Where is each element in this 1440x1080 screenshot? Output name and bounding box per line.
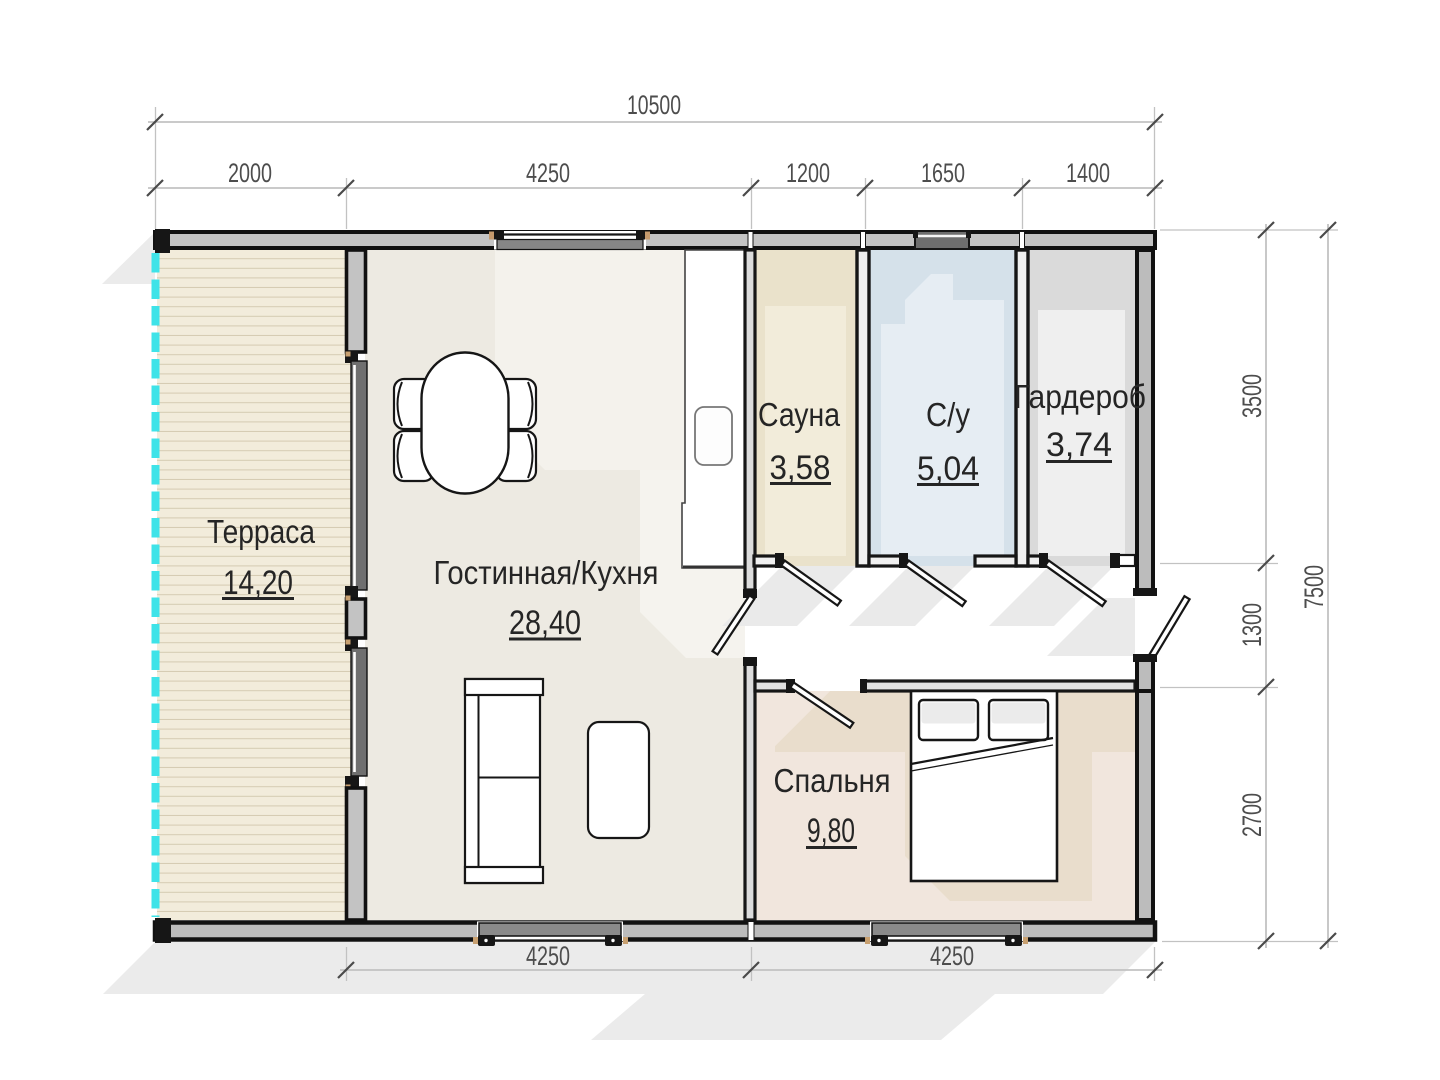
svg-text:4250: 4250 bbox=[526, 158, 570, 188]
svg-text:7500: 7500 bbox=[1299, 565, 1329, 609]
svg-text:1400: 1400 bbox=[1066, 158, 1110, 188]
svg-text:Сауна: Сауна bbox=[758, 396, 841, 433]
svg-text:3500: 3500 bbox=[1237, 374, 1267, 418]
svg-text:10500: 10500 bbox=[627, 90, 681, 120]
svg-text:1650: 1650 bbox=[921, 158, 965, 188]
svg-text:4250: 4250 bbox=[526, 941, 570, 971]
svg-text:28,40: 28,40 bbox=[509, 604, 581, 642]
svg-text:14,20: 14,20 bbox=[223, 564, 293, 602]
svg-text:5,04: 5,04 bbox=[917, 450, 979, 488]
svg-text:3,74: 3,74 bbox=[1046, 426, 1112, 464]
svg-text:Гардероб: Гардероб bbox=[1014, 378, 1146, 415]
svg-text:Терраса: Терраса bbox=[207, 513, 316, 550]
svg-text:4250: 4250 bbox=[930, 941, 974, 971]
svg-text:2000: 2000 bbox=[228, 158, 272, 188]
svg-text:3,58: 3,58 bbox=[770, 449, 831, 487]
svg-text:Гостинная/Кухня: Гостинная/Кухня bbox=[434, 554, 659, 591]
svg-text:9,80: 9,80 bbox=[807, 812, 855, 850]
svg-text:С/у: С/у bbox=[926, 396, 970, 433]
svg-text:1200: 1200 bbox=[786, 158, 830, 188]
svg-text:2700: 2700 bbox=[1237, 793, 1267, 837]
svg-text:1300: 1300 bbox=[1237, 603, 1267, 647]
svg-text:Спальня: Спальня bbox=[774, 762, 891, 799]
